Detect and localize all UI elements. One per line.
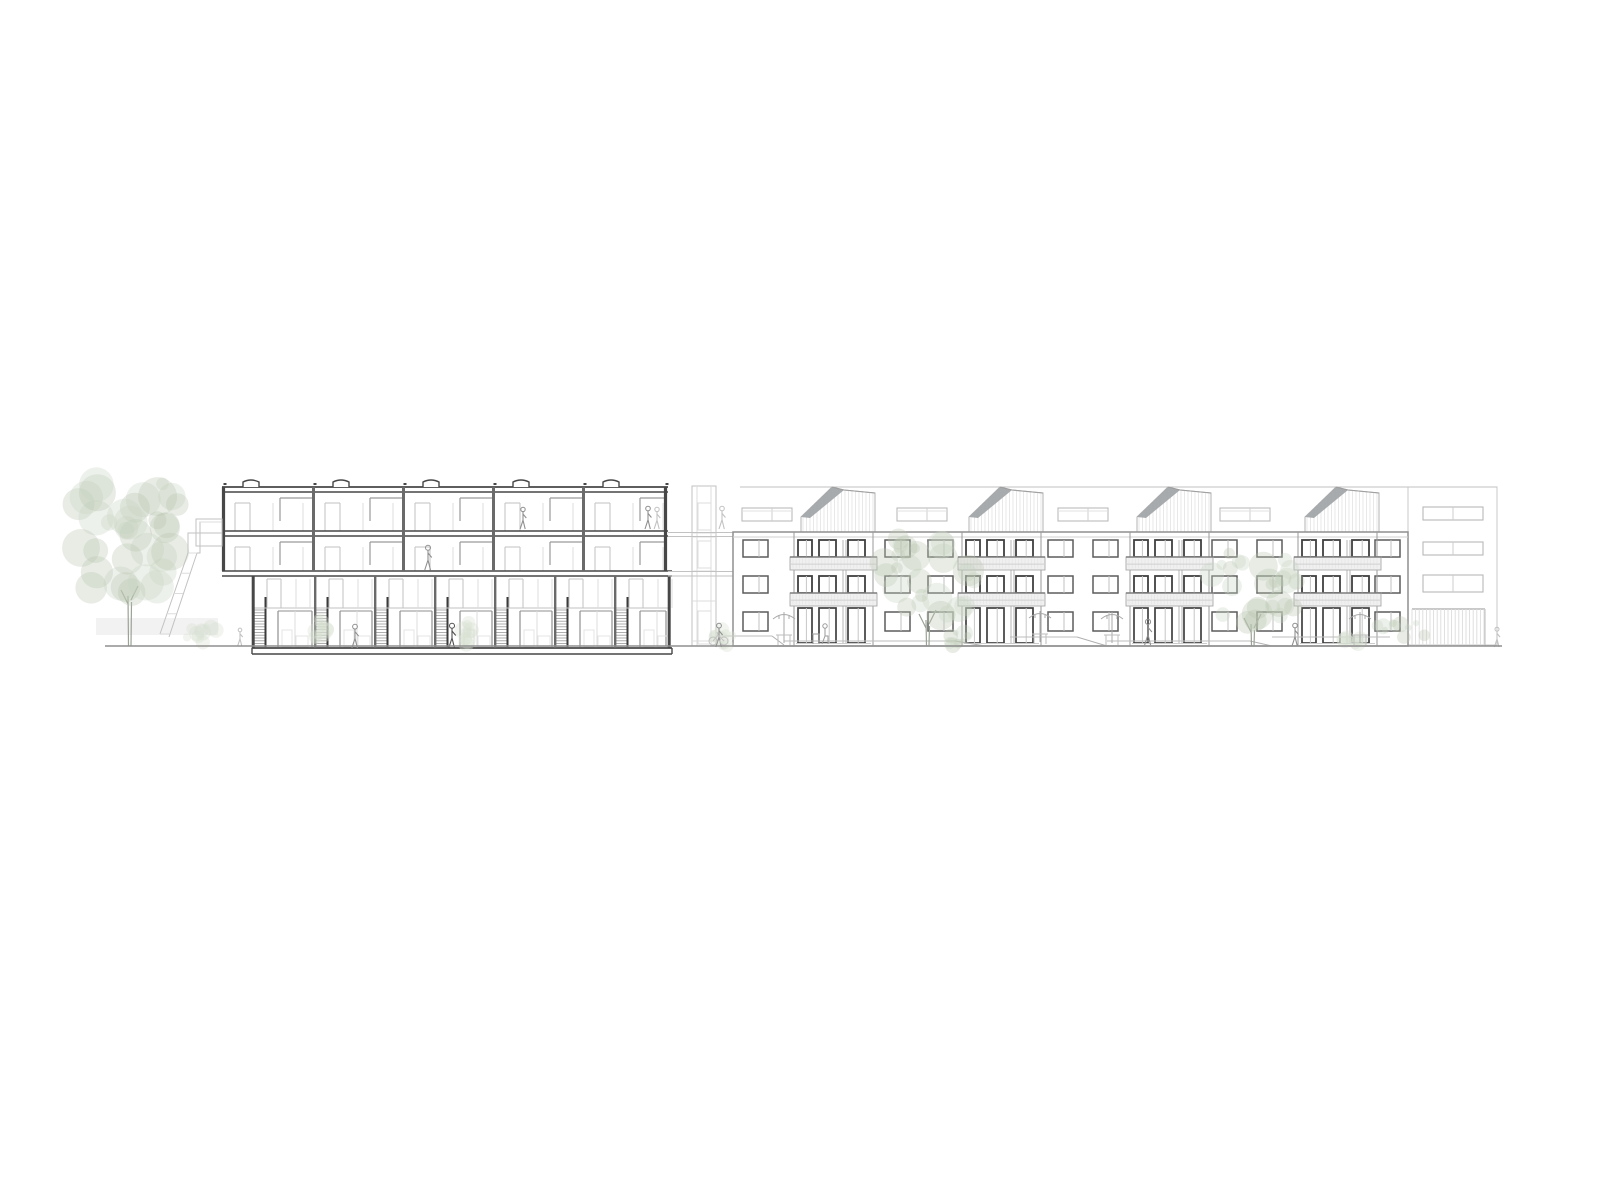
balcony-balustrade: [1126, 593, 1213, 606]
roof-railing-band: [1058, 508, 1108, 521]
roof-railing-band: [897, 508, 947, 521]
roof-hatch: [333, 480, 349, 487]
bay-window: [798, 540, 812, 557]
bay-window: [1323, 540, 1340, 557]
window: [1048, 576, 1073, 593]
bay-window: [1302, 540, 1316, 557]
window: [1048, 540, 1073, 557]
penthouse: [801, 487, 875, 532]
bay-window: [798, 576, 812, 593]
window: [743, 576, 768, 593]
balcony-balustrade: [1126, 557, 1213, 570]
bay-window: [819, 576, 836, 593]
bay-window: [1352, 576, 1369, 593]
bay-window: [1323, 576, 1340, 593]
person-figure: [238, 628, 243, 646]
window: [1093, 540, 1118, 557]
terrace-step: [188, 533, 200, 553]
penthouse: [1305, 487, 1379, 532]
bay-window: [1302, 576, 1316, 593]
window: [1375, 540, 1400, 557]
penthouse: [1137, 487, 1211, 532]
bay-door: [987, 608, 1004, 643]
roof-hatch: [243, 480, 259, 487]
balcony-balustrade: [790, 557, 877, 570]
bay-window: [966, 540, 980, 557]
connector-shaft: [692, 486, 716, 646]
bay-door: [848, 608, 865, 643]
balcony-bay: [790, 532, 877, 646]
bay-door: [1155, 608, 1172, 643]
balcony-bay: [1126, 532, 1213, 646]
bay-window: [1016, 576, 1033, 593]
window: [743, 540, 768, 557]
bay-window: [1184, 576, 1201, 593]
setback-wing: [1408, 487, 1497, 646]
bay-window: [1134, 576, 1148, 593]
bush: [1337, 631, 1369, 652]
bay-door: [1184, 608, 1201, 643]
bay-window: [848, 576, 865, 593]
roof-railing-band: [1220, 508, 1270, 521]
bay-window: [1184, 540, 1201, 557]
roof-hatch: [423, 480, 439, 487]
roof-hatch: [603, 480, 619, 487]
bay-window: [1016, 540, 1033, 557]
bay-window: [848, 540, 865, 557]
bay-door: [798, 608, 812, 643]
window: [1093, 576, 1118, 593]
roof-railing-band: [742, 508, 792, 521]
drawing-svg: [0, 0, 1600, 1200]
section-building: [196, 480, 672, 654]
balcony-balustrade: [1294, 593, 1381, 606]
terrace-step: [200, 522, 222, 533]
balcony-bay: [1294, 532, 1381, 646]
roof-hatches: [243, 480, 619, 487]
balcony-balustrade: [790, 593, 877, 606]
bay-window: [819, 540, 836, 557]
bay-window: [1155, 540, 1172, 557]
bay-window: [1352, 540, 1369, 557]
architectural-drawing-canvas: [0, 0, 1600, 1200]
window: [1375, 576, 1400, 593]
bay-door: [1134, 608, 1148, 643]
bay-window: [1134, 540, 1148, 557]
penthouse: [969, 487, 1043, 532]
bay-door: [1302, 608, 1316, 643]
roof-hatch: [513, 480, 529, 487]
person-figure: [719, 506, 725, 529]
bay-window: [987, 540, 1004, 557]
bay-window: [1155, 576, 1172, 593]
ground-window: [1048, 612, 1073, 631]
bay-door: [1016, 608, 1033, 643]
bay-window: [987, 576, 1004, 593]
balcony-balustrade: [1294, 557, 1381, 570]
ground-window: [743, 612, 768, 631]
bush: [183, 620, 224, 650]
